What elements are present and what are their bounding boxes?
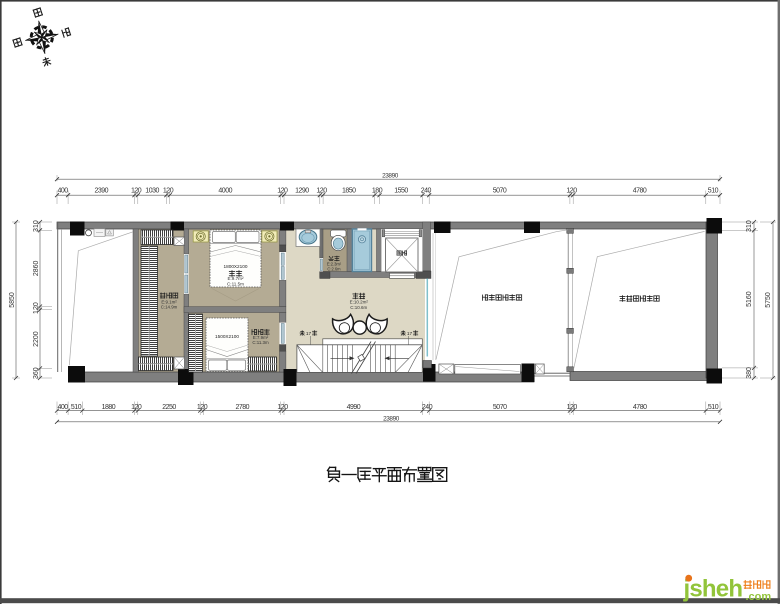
svg-text:1550: 1550	[394, 187, 408, 194]
svg-text:120: 120	[163, 187, 174, 194]
svg-text:C:14.9m: C:14.9m	[161, 305, 178, 310]
svg-text:310: 310	[746, 220, 753, 232]
svg-text:180: 180	[372, 187, 383, 194]
svg-text:5750: 5750	[765, 292, 772, 308]
svg-text:510: 510	[708, 404, 719, 411]
svg-text:1880: 1880	[102, 404, 116, 411]
svg-text:240: 240	[422, 404, 433, 411]
svg-text:510: 510	[708, 187, 719, 194]
svg-text:17: 17	[407, 331, 413, 337]
svg-text:5070: 5070	[493, 187, 507, 194]
svg-text:240: 240	[421, 187, 432, 194]
svg-text:120: 120	[131, 404, 142, 411]
svg-text:5850: 5850	[9, 292, 16, 308]
svg-text:2860: 2860	[33, 261, 40, 277]
svg-text:C:2.6m: C:2.6m	[327, 266, 341, 271]
svg-text:360: 360	[33, 367, 40, 379]
svg-text:120: 120	[131, 187, 142, 194]
svg-text:1290: 1290	[295, 187, 309, 194]
svg-text:120: 120	[277, 187, 288, 194]
svg-text:5160: 5160	[746, 291, 753, 307]
svg-text:4780: 4780	[633, 187, 647, 194]
svg-text:C:11.5m: C:11.5m	[227, 281, 244, 286]
svg-text:310: 310	[33, 220, 40, 232]
svg-text:2250: 2250	[162, 404, 176, 411]
svg-text:120: 120	[566, 187, 577, 194]
svg-text:120: 120	[316, 187, 327, 194]
svg-text:23890: 23890	[383, 415, 400, 422]
svg-text:E:10.2m²: E:10.2m²	[350, 300, 369, 305]
svg-text:2200: 2200	[33, 331, 40, 347]
svg-text:1850: 1850	[342, 187, 356, 194]
svg-text:4990: 4990	[347, 404, 361, 411]
svg-text:C:10.6m: C:10.6m	[350, 305, 367, 310]
svg-text:2780: 2780	[236, 404, 250, 411]
svg-text:1800X2100: 1800X2100	[224, 264, 248, 269]
svg-text:2390: 2390	[95, 187, 109, 194]
svg-text:4780: 4780	[633, 404, 647, 411]
svg-text:17: 17	[306, 331, 312, 337]
svg-text:4000: 4000	[218, 187, 232, 194]
svg-text:1500X2100: 1500X2100	[215, 334, 239, 339]
svg-text:5070: 5070	[493, 404, 507, 411]
svg-text:120: 120	[277, 404, 288, 411]
svg-text:120: 120	[33, 302, 40, 314]
svg-text:.com: .com	[746, 591, 772, 603]
svg-text:510: 510	[71, 404, 82, 411]
svg-text:120: 120	[567, 404, 578, 411]
svg-text:C:11.3m: C:11.3m	[252, 340, 269, 345]
svg-text:23890: 23890	[382, 173, 399, 180]
svg-text:120: 120	[197, 404, 208, 411]
svg-text:400: 400	[58, 404, 69, 411]
svg-text:1030: 1030	[145, 187, 159, 194]
svg-text:380: 380	[746, 367, 753, 379]
svg-text:400: 400	[58, 187, 69, 194]
